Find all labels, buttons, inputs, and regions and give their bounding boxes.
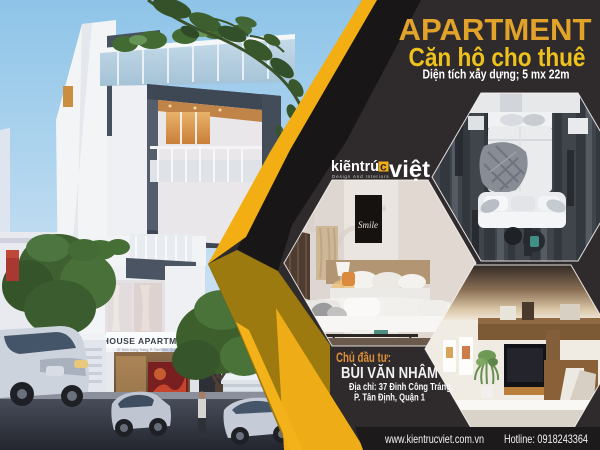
svg-text:kiẽntrú: kiẽntrú xyxy=(331,158,379,175)
svg-text:Hotline: 0918243364: Hotline: 0918243364 xyxy=(504,432,588,446)
svg-text:Design And Interiors: Design And Interiors xyxy=(332,174,389,179)
svg-text:Chủ đầu tư:: Chủ đầu tư: xyxy=(336,349,391,365)
svg-text:việt: việt xyxy=(389,156,430,182)
svg-text:P. Tân Định, Quận 1: P. Tân Định, Quận 1 xyxy=(354,392,425,404)
svg-text:c: c xyxy=(380,160,387,174)
svg-text:Smile: Smile xyxy=(358,220,378,230)
svg-text:37 Dinh Cong Trang, P. Tan Din: 37 Dinh Cong Trang, P. Tan Dinh, Quan 1 xyxy=(117,348,181,352)
svg-text:Diện tích xây dựng; 5 mx 22m: Diện tích xây dựng; 5 mx 22m xyxy=(423,67,570,82)
svg-text:BÙI VĂN NHÂM: BÙI VĂN NHÂM xyxy=(341,364,438,382)
svg-text:www.kientrucviet.com.vn: www.kientrucviet.com.vn xyxy=(384,432,484,446)
